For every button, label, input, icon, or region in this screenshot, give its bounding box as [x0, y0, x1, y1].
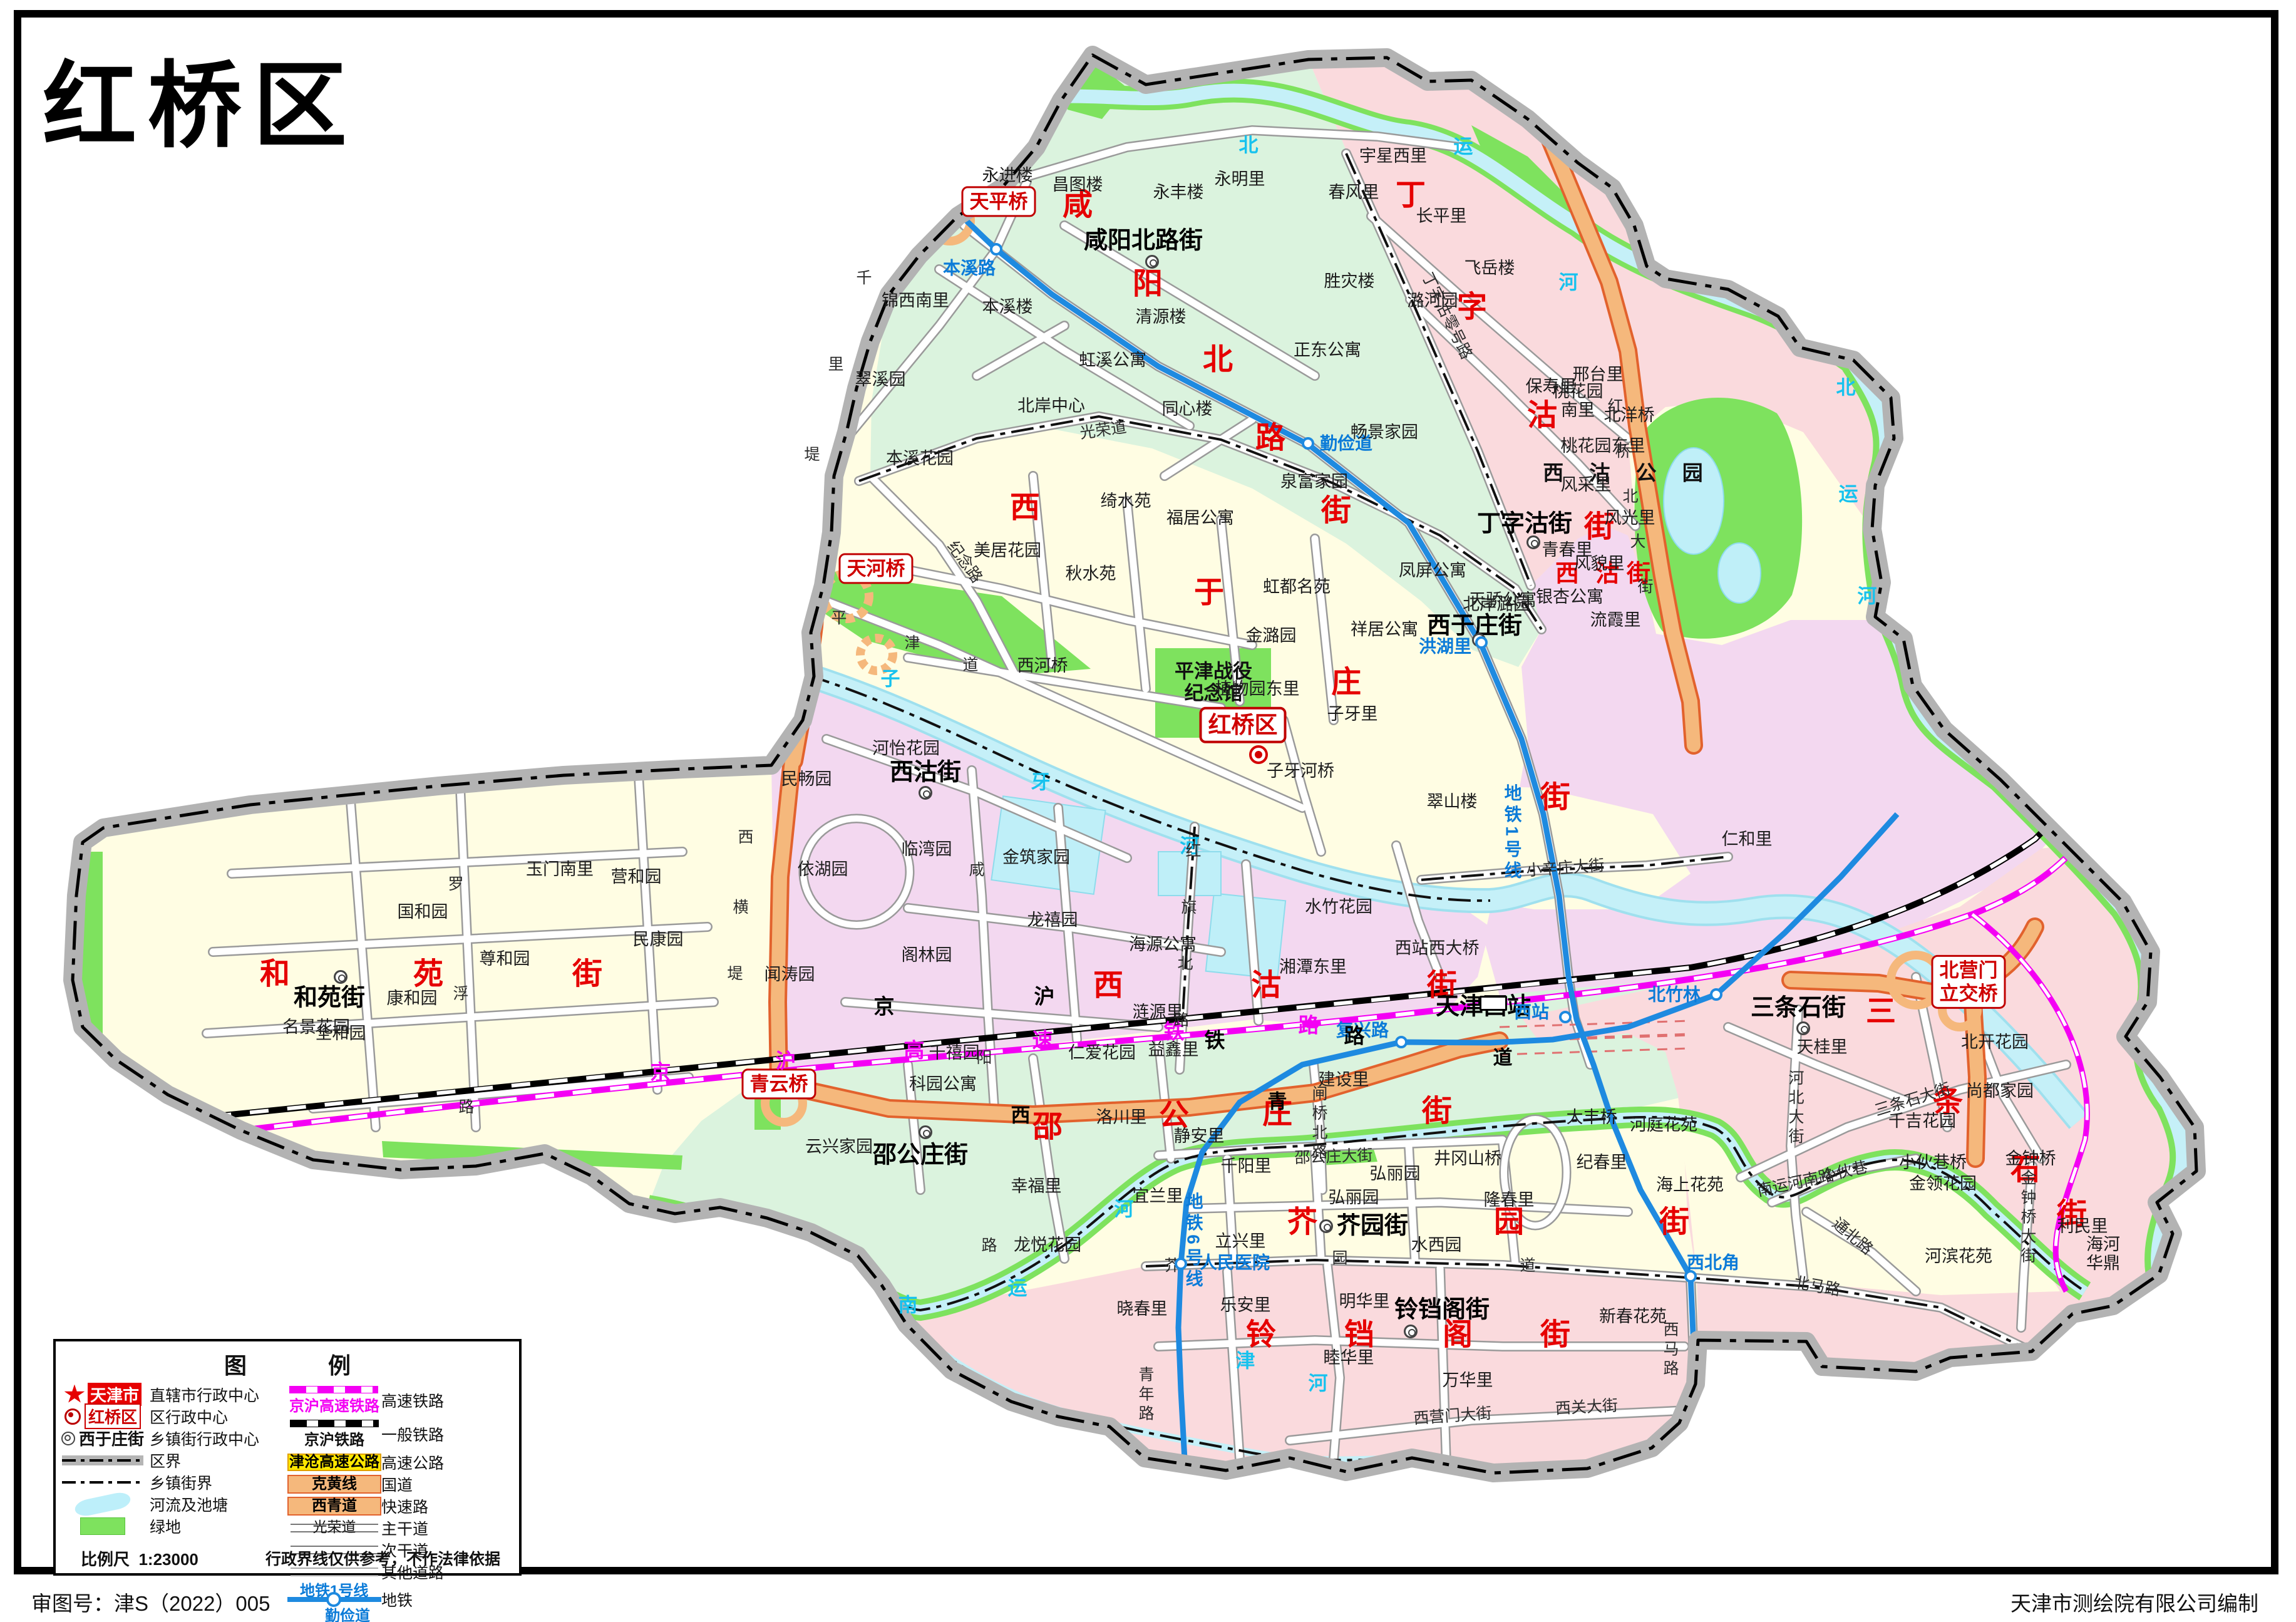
map-label-堤: 堤: [804, 447, 820, 464]
map-label-京: 京: [874, 996, 895, 1019]
map-label-地铁1号线: 地铁1号线: [1502, 783, 1521, 882]
district-border-icon: [62, 1455, 143, 1465]
map-label-纪春里: 纪春里: [1577, 1153, 1627, 1172]
map-label-街: 街: [1321, 494, 1351, 528]
map-label-沪: 沪: [1034, 986, 1055, 1009]
legend-item-区行政中心: 红桥区区行政中心: [56, 1406, 287, 1427]
map-label-静安里: 静安里: [1174, 1127, 1225, 1145]
map-label-街: 街: [572, 958, 602, 991]
town-marker-邵公庄街: [919, 1125, 932, 1139]
map-label-路: 路: [1344, 1025, 1365, 1048]
map-label-弘丽园: 弘丽园: [1370, 1164, 1421, 1183]
map-label-南: 南: [898, 1295, 918, 1317]
map-label-京: 京: [651, 1062, 671, 1085]
map-label-水竹花园: 水竹花园: [1305, 897, 1372, 916]
map-label-泉富家园: 泉富家园: [1280, 472, 1348, 491]
legend-item-直辖市行政中心: 天津市直辖市行政中心: [56, 1384, 287, 1405]
legend-item-主干道: 光荣道主干道: [287, 1517, 519, 1538]
map-label-金钟桥大街: 金钟桥大街: [2018, 1170, 2036, 1267]
map-label-海河华鼎: 海河 华鼎: [2086, 1235, 2120, 1273]
map-label-咸阳北路街: 咸阳北路街: [1084, 228, 1203, 255]
map-label-路: 路: [1255, 421, 1285, 455]
map-label-虹溪公寓: 虹溪公寓: [1079, 351, 1146, 369]
map-label-道: 道: [1493, 1048, 1513, 1070]
map-label-龙禧园: 龙禧园: [1027, 911, 1078, 929]
map-label-本溪花园: 本溪花园: [886, 449, 954, 468]
map-label-玉门南里: 玉门南里: [526, 860, 594, 879]
map-label-昌图楼: 昌图楼: [1053, 175, 1103, 194]
map-label-咸: 咸: [969, 862, 984, 879]
map-label-晓春里: 晓春里: [1117, 1299, 1168, 1318]
map-label-西河桥: 西河桥: [1017, 656, 1068, 675]
map-label-金领花园: 金领花园: [1909, 1174, 1977, 1193]
town-marker-丁字沽街: [1526, 535, 1540, 549]
map-label-凤屏公寓: 凤屏公寓: [1399, 561, 1466, 580]
map-label-天河桥: 天河桥: [839, 553, 914, 584]
map-label-运: 运: [1008, 1278, 1027, 1300]
map-label-长平里: 长平里: [1416, 207, 1467, 225]
map-label-潞河园: 潞河园: [1408, 291, 1458, 310]
map-label-翠溪园: 翠溪园: [855, 370, 906, 389]
map-label-西关大街: 西关大街: [1555, 1397, 1618, 1418]
map-label-风采里: 风采里: [1561, 475, 1612, 494]
map-label-依湖园: 依湖园: [798, 860, 848, 879]
map-label-翠山楼: 翠山楼: [1427, 792, 1478, 811]
map-label-阳: 阳: [1133, 267, 1163, 301]
map-label-尚都家园: 尚都家园: [1966, 1082, 2034, 1100]
star-icon: [64, 1385, 85, 1405]
map-label-美居花园: 美居花园: [974, 541, 1041, 560]
legend-item-高速公路: 津沧高速公路高速公路: [287, 1452, 519, 1472]
map-label-河: 河: [1559, 272, 1578, 294]
map-label-秋水苑: 秋水苑: [1066, 564, 1116, 583]
map-label-道: 道: [962, 657, 978, 674]
map-label-津: 津: [904, 635, 920, 653]
map-label-洪湖里: 洪湖里: [1419, 636, 1471, 656]
map-label-罗: 罗: [448, 876, 463, 894]
map-label-街: 街: [1540, 1318, 1570, 1352]
map-label-园: 园: [1494, 1206, 1524, 1239]
map-label-金筑家园: 金筑家园: [1002, 848, 1070, 867]
map-label-西: 西: [1011, 1105, 1031, 1127]
map-label-西营门大街: 西营门大街: [1413, 1405, 1493, 1428]
map-label-路: 路: [1299, 1015, 1319, 1038]
map-label-桃花园东里: 桃花园东里: [1561, 436, 1645, 455]
map-label-北: 北: [1177, 956, 1193, 973]
map-label-临湾园: 临湾园: [902, 840, 952, 859]
map-label-云兴家园: 云兴家园: [805, 1137, 873, 1156]
map-label-北: 北: [1203, 343, 1233, 377]
map-label-幸福里: 幸福里: [1011, 1177, 1062, 1196]
map-label-三: 三: [1866, 995, 1896, 1029]
map-label-北岸潞园: 北岸潞园: [1463, 595, 1530, 614]
map-label-铛: 铛: [1344, 1318, 1374, 1352]
district-center-icon: [64, 1408, 81, 1425]
town-marker-和苑街: [334, 970, 347, 984]
map-label-闸桥北路: 闸桥北路: [1309, 1085, 1327, 1163]
map-label-建设里: 建设里: [1319, 1070, 1369, 1089]
map-label-河怡花园: 河怡花园: [872, 739, 940, 758]
town-marker-铃铛阁街: [1404, 1325, 1418, 1338]
map-label-海上花苑: 海上花苑: [1656, 1175, 1724, 1194]
metro-marker-洪湖里: [1475, 636, 1488, 649]
legend-item-区界: 区界: [56, 1450, 287, 1470]
map-label-青: 青: [1268, 1092, 1287, 1113]
map-label-沪: 沪: [776, 1050, 796, 1073]
map-label-大丰桥: 大丰桥: [1567, 1108, 1617, 1127]
review-number: 审图号：津S（2022）005: [31, 1587, 270, 1617]
map-label-睦华里: 睦华里: [1324, 1348, 1374, 1367]
map-label-永明里: 永明里: [1215, 170, 1265, 189]
map-label-道: 道: [1520, 1258, 1535, 1275]
map-label-堤: 堤: [727, 966, 743, 983]
map-label-青云桥: 青云桥: [742, 1068, 816, 1099]
town-border-icon: [62, 1481, 143, 1484]
map-label-平: 平: [831, 610, 847, 628]
map-label-于: 于: [1194, 576, 1224, 610]
map-label-新春花苑: 新春花苑: [1599, 1307, 1667, 1326]
map-label-仁和里: 仁和里: [1722, 830, 1773, 849]
map-label-横: 横: [733, 899, 748, 917]
main-road-icon: 光荣道: [291, 1524, 378, 1532]
map-label-流霞里: 流霞里: [1590, 611, 1641, 629]
map-label-桃花园南里: 桃花园 南里: [1553, 382, 1604, 420]
map-label-益鑫里: 益鑫里: [1148, 1040, 1199, 1059]
map-label-小伙巷桥: 小伙巷桥: [1899, 1153, 1967, 1172]
map-label-本溪路: 本溪路: [943, 258, 996, 277]
map-label-金潞园: 金潞园: [1246, 626, 1297, 645]
map-label-牙: 牙: [1031, 772, 1051, 794]
map-label-营和园: 营和园: [611, 867, 662, 886]
map-label-北开花园: 北开花园: [1961, 1033, 2029, 1051]
map-label-绮水苑: 绮水苑: [1101, 492, 1151, 510]
green-icon: [80, 1517, 125, 1535]
map-label-民康园: 民康园: [633, 930, 684, 949]
map-label-利民里: 利民里: [2057, 1217, 2108, 1236]
map-label-子: 子: [881, 669, 900, 691]
map-label-千: 千: [856, 270, 872, 287]
map-label-街: 街: [1422, 1095, 1452, 1129]
map-label-子牙河桥: 子牙河桥: [1267, 762, 1334, 780]
rail-marker-天津西站: [1480, 996, 1507, 1011]
legend: 图 例 天津市直辖市行政中心红桥区区行政中心西于庄街乡镇街行政中心区界乡镇街界河…: [53, 1339, 522, 1576]
map-label-风光里: 风光里: [1605, 509, 1655, 527]
map-label-弘丽园: 弘丽园: [1329, 1188, 1379, 1207]
map-label-运: 运: [1454, 137, 1473, 158]
legend-item-河流及池塘: 河流及池塘: [56, 1494, 287, 1514]
map-label-北营门立交桥: 北营门 立交桥: [1932, 955, 2006, 1009]
map-label-小辛庄大街: 小辛庄大街: [1526, 857, 1605, 881]
map-label-西: 西: [738, 829, 753, 847]
hsr-icon: [289, 1386, 378, 1393]
map-label-邢台里: 邢台里: [1573, 365, 1624, 384]
map-label-立兴里: 立兴里: [1215, 1232, 1266, 1251]
map-label-永进楼: 永进楼: [982, 166, 1033, 185]
town-center-icon: [61, 1432, 75, 1445]
map-label-街: 街: [1659, 1206, 1689, 1239]
map-label-万华里: 万华里: [1443, 1371, 1493, 1390]
map-label-虹都名苑: 虹都名苑: [1263, 577, 1331, 596]
map-label-明华里: 明华里: [1339, 1292, 1390, 1311]
map-label-浮: 浮: [453, 986, 468, 1003]
map-label-路: 路: [981, 1237, 997, 1255]
legend-scale: 比例尺 1:23000: [81, 1547, 198, 1570]
map-sheet: 红桥区 咸阳北路街丁字沽街西沽街西沽街和苑街西于庄街邵公庄街芥园街铃铛阁街三条石…: [0, 0, 2296, 1622]
map-label-邵: 邵: [1032, 1110, 1063, 1144]
map-label-红: 红: [1185, 843, 1201, 860]
map-label-南运河南路: 南运河南路: [1756, 1167, 1836, 1200]
map-label-西: 西: [1093, 969, 1123, 1003]
map-label-地铁6号线: 地铁6号线: [1183, 1192, 1203, 1291]
map-label-祥居公寓: 祥居公寓: [1351, 620, 1418, 639]
producer: 天津市测绘院有限公司编制: [2010, 1587, 2258, 1617]
legend-item-高速铁路: 京沪高速铁路高速铁路: [287, 1384, 519, 1417]
metro-marker-人民医院: [1175, 1258, 1187, 1270]
national-road-icon: 克黄线: [287, 1475, 381, 1494]
map-label-邵公庄街: 邵公庄街: [873, 1142, 968, 1169]
map-label-河北大街: 河北大街: [1786, 1070, 1803, 1147]
map-label-丁字沽街: 丁字沽街: [1477, 511, 1572, 538]
map-label-天桂里: 天桂里: [1797, 1038, 1848, 1056]
map-label-尊和园: 尊和园: [480, 949, 530, 968]
map-label-河: 河: [1858, 586, 1877, 608]
map-label-北竹林: 北竹林: [1648, 984, 1701, 1004]
map-label-飞岳楼: 飞岳楼: [1465, 259, 1515, 277]
map-label-铃: 铃: [1246, 1318, 1276, 1352]
map-label-西马路: 西马路: [1660, 1321, 1678, 1380]
district-marker-红桥区: [1249, 745, 1268, 764]
metro-marker-西北角: [1684, 1270, 1697, 1283]
map-label-涟源里: 涟源里: [1133, 1003, 1183, 1021]
map-label-西站西大桥: 西站西大桥: [1395, 939, 1480, 958]
map-label-大: 大: [1630, 534, 1645, 551]
map-label-正东公寓: 正东公寓: [1294, 341, 1361, 359]
map-label-西: 西: [1010, 491, 1040, 525]
map-label-民畅园: 民畅园: [781, 770, 832, 788]
rail-icon: [290, 1420, 379, 1427]
map-label-苑: 苑: [413, 958, 443, 991]
map-label-千阳里: 千阳里: [1221, 1157, 1272, 1175]
metro-marker-本溪路: [990, 243, 1002, 256]
map-label-北: 北: [1622, 488, 1638, 506]
map-label-铃铛阁街: 铃铛阁街: [1394, 1297, 1490, 1324]
map-label-胜灾楼: 胜灾楼: [1324, 272, 1375, 291]
map-label-人民医院: 人民医院: [1200, 1253, 1270, 1272]
map-label-西北角: 西北角: [1687, 1253, 1739, 1272]
map-label-邵公庄大街: 邵公庄大街: [1294, 1147, 1373, 1167]
map-label-速: 速: [1032, 1030, 1053, 1053]
map-label-康和园: 康和园: [387, 989, 438, 1008]
map-label-春风里: 春风里: [1329, 183, 1379, 202]
map-label-芥园街: 芥园街: [1337, 1213, 1408, 1240]
map-label-隆春里: 隆春里: [1484, 1191, 1535, 1209]
metro-marker-北竹林: [1710, 988, 1722, 1001]
map-label-国和园: 国和园: [398, 902, 448, 921]
map-label-阁林园: 阁林园: [902, 946, 952, 964]
map-label-北: 北: [1836, 378, 1856, 400]
map-label-运: 运: [1839, 484, 1858, 506]
river-icon: [73, 1490, 131, 1517]
map-label-子牙里: 子牙里: [1327, 705, 1378, 723]
map-label-字: 字: [1457, 291, 1487, 324]
map-label-宜兰里: 宜兰里: [1133, 1187, 1183, 1206]
legend-item-乡镇街行政中心: 西于庄街乡镇街行政中心: [56, 1428, 287, 1449]
map-label-银杏公寓: 银杏公寓: [1536, 587, 1604, 606]
map-label-金钟桥: 金钟桥: [2005, 1149, 2056, 1168]
map-label-洛川里: 洛川里: [1096, 1108, 1147, 1127]
map-label-水西园: 水西园: [1411, 1236, 1462, 1254]
map-label-仁爱花园: 仁爱花园: [1068, 1043, 1136, 1062]
map-label-河: 河: [1309, 1373, 1328, 1395]
map-label-湘潭东里: 湘潭东里: [1279, 958, 1347, 976]
map-label-北马路: 北马路: [1793, 1274, 1842, 1300]
town-marker-三条石街: [1796, 1021, 1810, 1035]
legend-item-快速路: 西青道快速路: [287, 1495, 519, 1516]
legend-note: 行政界线仅供参考，不作法律依据: [265, 1547, 500, 1569]
map-label-红桥区: 红桥区: [1200, 707, 1287, 743]
map-label-植物园东里: 植物园东里: [1215, 679, 1300, 698]
metro-marker-复兴路: [1395, 1036, 1408, 1048]
map-label-铁: 铁: [1205, 1030, 1225, 1053]
map-label-西站: 西站: [1514, 1002, 1549, 1021]
map-label-龙悦花园: 龙悦花园: [1014, 1236, 1081, 1254]
map-label-里: 里: [828, 356, 843, 374]
map-label-街: 街: [1540, 781, 1570, 815]
map-label-和苑街: 和苑街: [294, 985, 365, 1012]
bottom-bar: 审图号：津S（2022）005 天津市测绘院有限公司编制: [0, 1578, 2296, 1622]
map-label-畅景家园: 畅景家园: [1351, 423, 1418, 442]
expressway-icon: 津沧高速公路: [287, 1454, 381, 1471]
map-label-千吉花园: 千吉花园: [1888, 1112, 1956, 1130]
map-label-芥: 芥: [1287, 1206, 1317, 1239]
map-label-通北路: 通北路: [1828, 1215, 1875, 1259]
town-marker-芥园街: [1319, 1219, 1333, 1233]
map-label-路: 路: [458, 1099, 474, 1117]
town-marker-西沽街: [919, 786, 932, 800]
map-label-同心楼: 同心楼: [1162, 400, 1213, 418]
map-label-北洋桥: 北洋桥: [1604, 406, 1655, 425]
map-label-园: 园: [1332, 1250, 1347, 1268]
map-label-井冈山桥: 井冈山桥: [1434, 1149, 1501, 1168]
map-label-闻涛园: 闻涛园: [764, 965, 815, 984]
legend-item-国道: 克黄线国道: [287, 1474, 519, 1494]
map-label-青春里: 青春里: [1542, 540, 1593, 559]
map-label-清源楼: 清源楼: [1136, 307, 1187, 326]
map-label-本溪楼: 本溪楼: [982, 297, 1033, 316]
legend-item-一般铁路: 京沪铁路一般铁路: [287, 1418, 519, 1450]
map-label-北岸中心: 北岸中心: [1017, 396, 1085, 415]
legend-item-绿地: 绿地: [56, 1516, 287, 1536]
map-label-津: 津: [1236, 1351, 1255, 1373]
map-label-科园公寓: 科园公寓: [909, 1075, 977, 1093]
map-label-千禧园: 千禧园: [929, 1043, 980, 1062]
fast-road-icon: 西青道: [287, 1497, 381, 1516]
map-label-和: 和: [260, 958, 290, 991]
map-label-河滨花苑: 河滨花苑: [1925, 1247, 1992, 1266]
map-label-天平桥: 天平桥: [962, 186, 1036, 217]
map-label-街: 街: [1637, 579, 1653, 596]
map-label-高: 高: [904, 1040, 925, 1063]
legend-item-乡镇街界: 乡镇街界: [56, 1472, 287, 1492]
map-label-旗: 旗: [1181, 899, 1197, 917]
map-label-西沽街: 西沽街: [890, 760, 961, 787]
map-label-永丰楼: 永丰楼: [1153, 183, 1204, 202]
map-label-宇星西里: 宇星西里: [1359, 147, 1427, 165]
map-label-全和园: 全和园: [316, 1024, 366, 1043]
town-marker-咸阳北路街: [1145, 255, 1159, 269]
map-label-福居公寓: 福居公寓: [1166, 509, 1234, 527]
map-label-青年路: 青年路: [1136, 1366, 1153, 1425]
map-label-河庭花苑: 河庭花苑: [1630, 1115, 1697, 1134]
metro-marker-勤俭道: [1302, 437, 1314, 450]
map-label-北: 北: [1239, 135, 1259, 157]
map-label-乐安里: 乐安里: [1220, 1296, 1271, 1315]
map-label-河: 河: [1115, 1199, 1134, 1221]
map-label-三条石街: 三条石街: [1751, 995, 1846, 1022]
map-label-海源公寓: 海源公寓: [1129, 935, 1197, 954]
map-label-光荣道: 光荣道: [1079, 419, 1128, 443]
map-label-锦西南里: 锦西南里: [882, 291, 949, 310]
map-label-庄: 庄: [1331, 666, 1361, 700]
legend-title: 图 例: [93, 1348, 519, 1380]
metro-marker-西站: [1559, 1011, 1572, 1023]
map-label-沽: 沽: [1251, 969, 1281, 1003]
